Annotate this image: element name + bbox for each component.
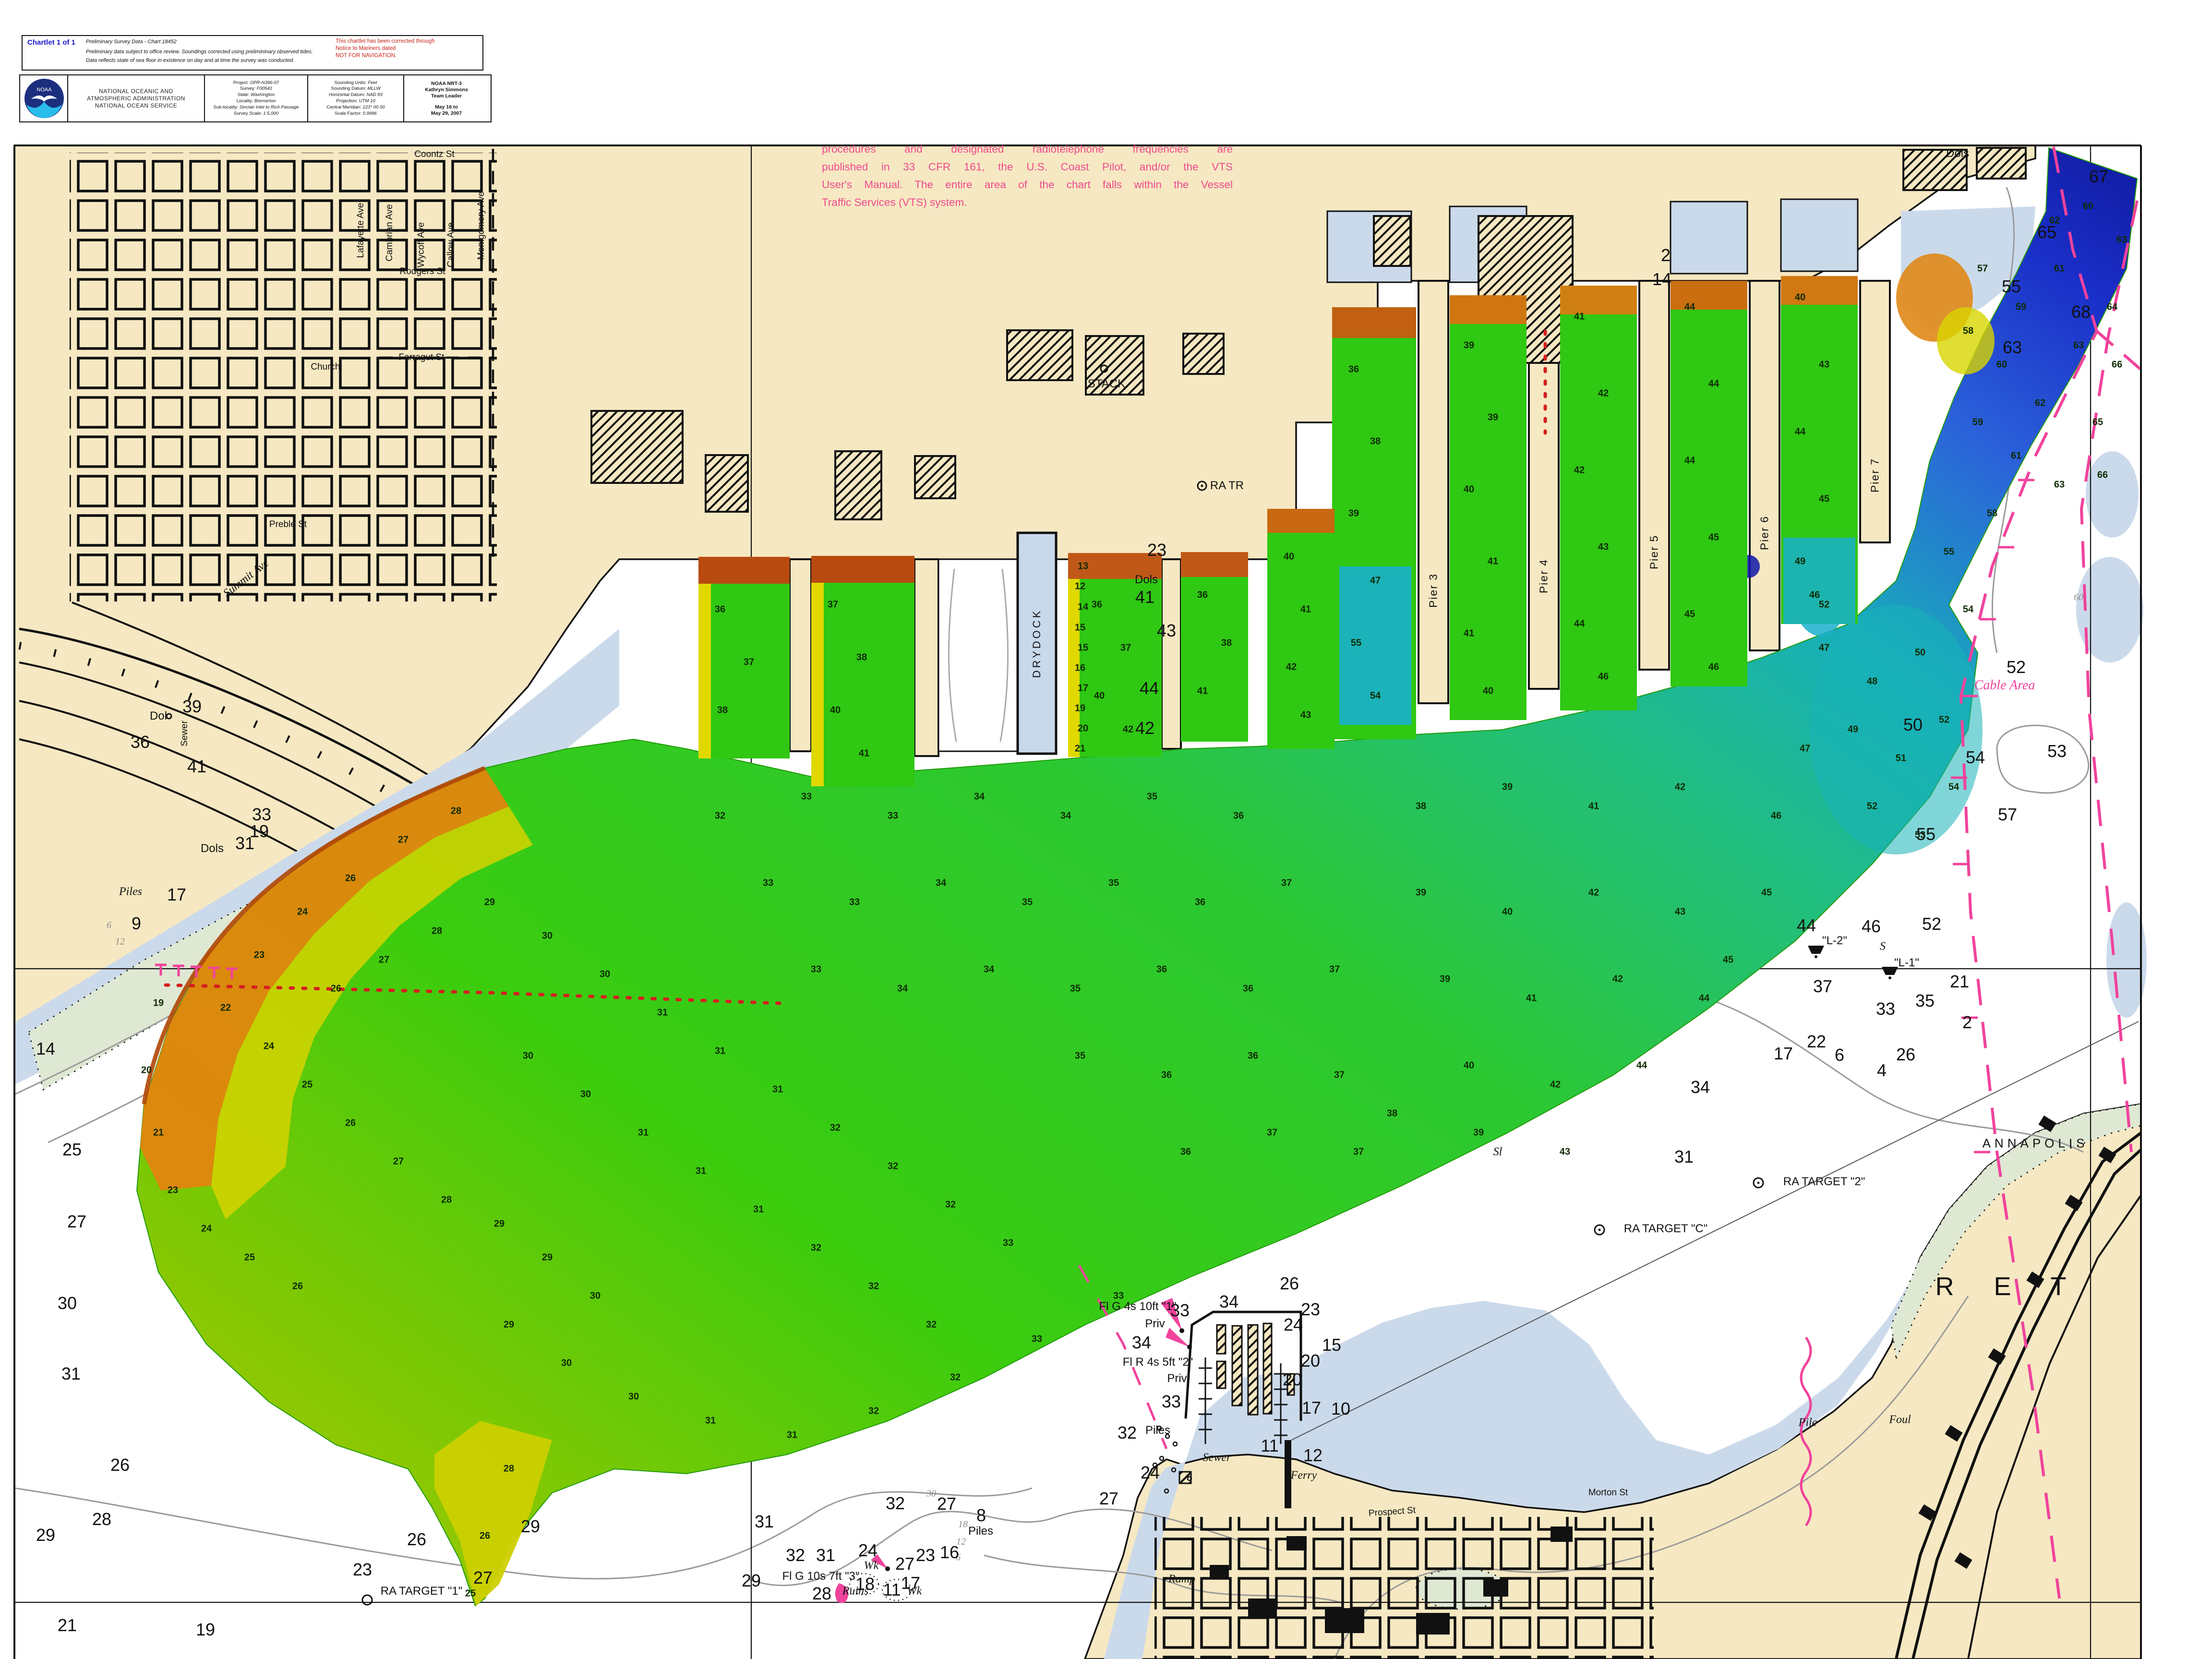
street-grid [70,153,497,601]
datum-info: Sounding Units: FeetSounding Datum: MLLW… [308,75,404,121]
shallow-pocket-1 [2086,451,2139,538]
south-street-grid [1154,1517,1654,1659]
preliminary-note-2: Data reflects state of sea floor in exis… [86,58,294,63]
chart-canvas [0,0,2212,1659]
project-info: Project: OPR-N396-07Survey: F00541State:… [205,75,308,121]
drydock-basin [1018,533,1056,754]
preliminary-note-1: Preliminary data subject to office revie… [86,49,313,55]
survey-teal-1 [1810,605,1983,854]
vts-note: procedures and designated radiotelephone… [822,140,1233,211]
chartlet-page: Chartlet 1 of 1 Preliminary Survey Data … [0,0,2212,1659]
chart-title: Preliminary Survey Data - Chart 18452 [86,39,177,45]
noaa-info-box: NOAA NATIONAL OCEANIC ANDATMOSPHERIC ADM… [19,74,492,122]
ferry-dock [1285,1440,1291,1508]
chartlet-number: Chartlet 1 of 1 [27,38,75,47]
survey-yellow-ne [1937,307,1995,374]
noaa-logo-cell: NOAA [20,75,68,121]
agency-name: NATIONAL OCEANIC ANDATMOSPHERIC ADMINIST… [68,75,205,121]
svg-text:NOAA: NOAA [36,87,52,93]
slip-white [938,559,1018,751]
chartlet-header-box: Chartlet 1 of 1 Preliminary Survey Data … [22,35,483,71]
noaa-logo: NOAA [24,78,65,119]
team-info: NOAA NRT-3Kathryn SimmonsTeam LeaderMay … [404,75,489,121]
correction-warning: This chartlet has been corrected through… [336,38,434,60]
